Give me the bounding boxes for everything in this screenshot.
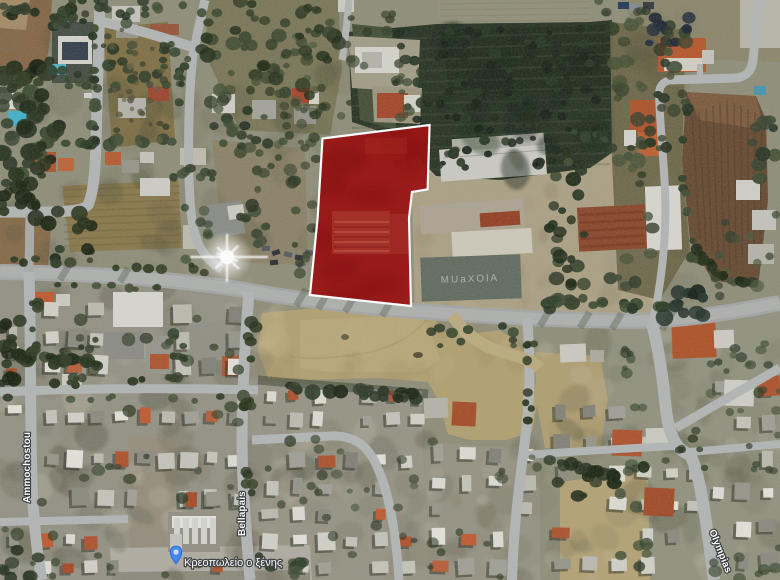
svg-text:Κρεοπωλείο ο ξένης: Κρεοπωλείο ο ξένης — [184, 557, 282, 569]
svg-text:Bellapais: Bellapais — [237, 491, 248, 536]
svg-text:Ammochostou: Ammochostou — [22, 432, 33, 503]
